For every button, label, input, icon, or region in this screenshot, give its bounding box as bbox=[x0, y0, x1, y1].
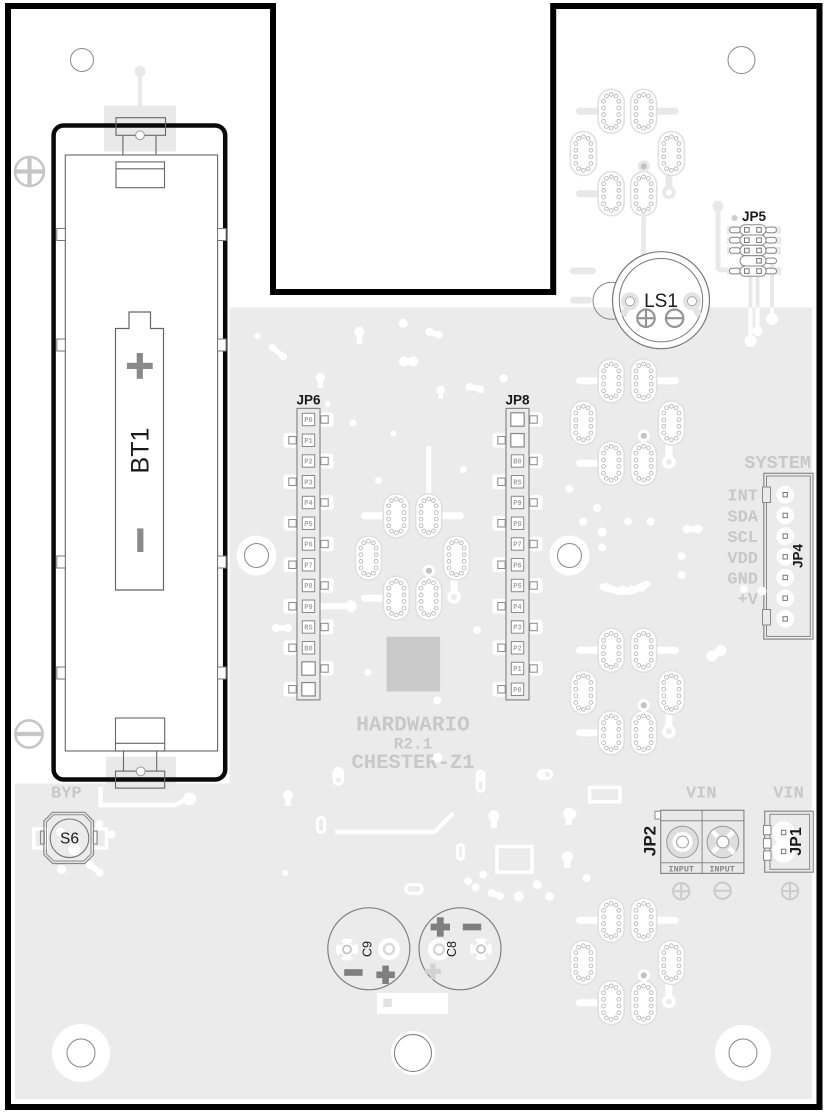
svg-text:VDD: VDD bbox=[727, 550, 758, 569]
svg-text:JP2: JP2 bbox=[641, 826, 660, 856]
svg-text:P8: P8 bbox=[513, 521, 521, 529]
svg-text:C8: C8 bbox=[445, 941, 459, 957]
svg-text:P7: P7 bbox=[513, 542, 521, 550]
svg-text:RS: RS bbox=[513, 479, 521, 487]
svg-text:P3: P3 bbox=[304, 479, 312, 487]
svg-text:JP5: JP5 bbox=[742, 209, 767, 224]
svg-text:P5: P5 bbox=[304, 521, 312, 529]
svg-text:JP8: JP8 bbox=[505, 393, 530, 408]
svg-text:P7: P7 bbox=[304, 562, 312, 570]
svg-text:P2: P2 bbox=[304, 459, 312, 467]
svg-text:GND: GND bbox=[727, 571, 758, 590]
svg-text:BYP: BYP bbox=[51, 785, 82, 804]
svg-text:CHESTER-Z1: CHESTER-Z1 bbox=[351, 752, 474, 775]
svg-text:P9: P9 bbox=[513, 500, 521, 508]
svg-text:P9: P9 bbox=[304, 604, 312, 612]
svg-text:INT: INT bbox=[727, 488, 758, 507]
svg-text:BT1: BT1 bbox=[127, 428, 155, 474]
svg-text:P6: P6 bbox=[304, 542, 312, 550]
svg-text:P4: P4 bbox=[304, 500, 312, 508]
svg-text:P4: P4 bbox=[513, 604, 521, 612]
svg-text:P8: P8 bbox=[304, 583, 312, 591]
svg-text:P2: P2 bbox=[513, 645, 521, 653]
svg-text:VIN: VIN bbox=[773, 785, 804, 804]
svg-text:VIN: VIN bbox=[686, 785, 717, 804]
svg-text:SCL: SCL bbox=[727, 529, 758, 548]
svg-text:LS1: LS1 bbox=[644, 291, 678, 312]
svg-text:B0: B0 bbox=[513, 459, 521, 467]
svg-text:P5: P5 bbox=[513, 583, 521, 591]
svg-text:SYSTEM: SYSTEM bbox=[744, 453, 811, 474]
svg-text:P0: P0 bbox=[513, 687, 521, 695]
svg-text:HARDWARIO: HARDWARIO bbox=[356, 715, 469, 738]
svg-text:P6: P6 bbox=[513, 562, 521, 570]
svg-text:JP4: JP4 bbox=[791, 544, 806, 569]
svg-text:SDA: SDA bbox=[727, 508, 758, 527]
svg-text:R2.1: R2.1 bbox=[394, 736, 432, 754]
svg-text:S6: S6 bbox=[60, 831, 79, 848]
svg-text:JP1: JP1 bbox=[788, 827, 805, 856]
svg-text:P3: P3 bbox=[513, 625, 521, 633]
svg-text:B0: B0 bbox=[304, 645, 312, 653]
svg-text:P0: P0 bbox=[304, 417, 312, 425]
svg-text:P1: P1 bbox=[304, 438, 312, 446]
svg-text:+V: +V bbox=[738, 591, 759, 610]
svg-text:P1: P1 bbox=[513, 666, 521, 674]
svg-text:C9: C9 bbox=[361, 941, 375, 957]
svg-text:JP6: JP6 bbox=[296, 393, 321, 408]
svg-text:RS: RS bbox=[304, 625, 312, 633]
svg-text:INPUT: INPUT bbox=[709, 865, 735, 875]
svg-text:INPUT: INPUT bbox=[669, 865, 695, 875]
